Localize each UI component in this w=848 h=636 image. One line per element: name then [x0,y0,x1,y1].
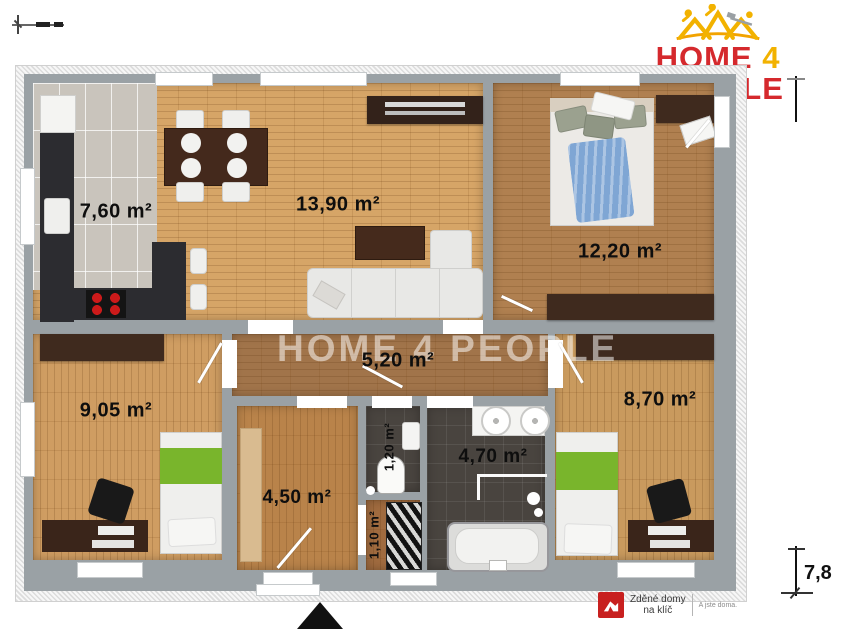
pillow [167,517,216,547]
footer-brand-name: Zděné domy na klíč [630,594,686,616]
pillow [583,114,616,140]
bed-green-stripe [556,452,618,490]
coffee-table [355,226,425,260]
wash-basin [481,406,511,436]
room-bedleft-label: 9,05 m² [80,400,152,423]
room-hall-label: 5,20 m² [362,350,434,373]
room-living-label: 13,90 m² [296,194,380,217]
toilet-paper [366,486,375,495]
brand-word-4: 4 [762,40,780,75]
window [390,572,437,586]
door-opening [358,505,366,555]
sofa-chaise [430,230,472,272]
window [20,402,35,477]
room-entry-label: 4,50 m² [263,487,332,509]
low-cabinet [547,294,714,320]
room-bedright-label: 8,70 m² [624,389,696,412]
bar-stool [190,248,207,274]
footer-divider [692,594,693,616]
bed-green-stripe [160,448,222,484]
bar-stool [190,284,207,310]
dining-chair [222,110,250,130]
floorplan-page: HOME 4 PEOPLE [0,0,848,636]
tv [385,102,465,107]
kitchen-peninsula [152,242,186,320]
door-opening [427,396,473,408]
sideboard [240,428,262,562]
room-bath-label: 4,70 m² [459,446,528,468]
tv-shelf [385,111,465,115]
wash-basin [520,406,550,436]
fixture-dot [534,508,543,517]
door-opening [222,340,237,388]
dining-chair [176,182,204,202]
footer-brand: Zděné domy na klíč A jste doma. [598,592,737,618]
door-opening [372,396,412,408]
footer-tagline: A jste doma. [699,602,738,609]
entrance-step [256,584,320,596]
plate [181,133,201,153]
stove-icon [86,290,126,318]
dining-chair [222,182,250,202]
kitchen-sink [44,198,70,234]
crown-icon [643,4,793,42]
plate [227,133,247,153]
bathtub-basin [455,528,539,564]
window [20,168,35,245]
desk-shelf [92,540,134,548]
pillow [563,523,612,555]
dining-chair [176,110,204,130]
door-opening [297,396,347,408]
fixture-dot [527,492,540,505]
window [77,562,143,578]
terrace-door [714,96,730,148]
keyboard [98,526,134,535]
roof-logo-icon [598,592,624,618]
window [560,72,640,86]
room-master-label: 12,20 m² [578,241,662,264]
room-kitchen-label: 7,60 m² [80,201,152,224]
plate [181,158,201,178]
room-wc-label: 1,20 m² [382,423,397,471]
window [155,72,213,86]
tv-cabinet [367,96,483,124]
footer-brand-line1: Zděné domy [630,594,686,605]
desk-shelf [650,540,690,548]
shelf-rack [386,502,422,570]
plate [227,158,247,178]
keyboard [648,526,686,535]
entrance-arrow-icon [297,602,343,629]
dining-table [164,128,268,186]
window [260,72,367,86]
wardrobe [40,334,164,361]
watermark: HOME 4 PEOPLE [277,328,618,370]
towel-rail [477,474,547,477]
wc-sink [402,422,420,450]
room-closet-label: 1,10 m² [367,511,382,559]
dimension-value: 7,8 [804,562,832,585]
towel-rail [477,474,480,500]
blanket [567,137,634,223]
window [617,562,695,578]
footer-brand-line2: na klíč [630,605,686,616]
bath-faucet [489,560,507,571]
fridge [40,95,76,133]
